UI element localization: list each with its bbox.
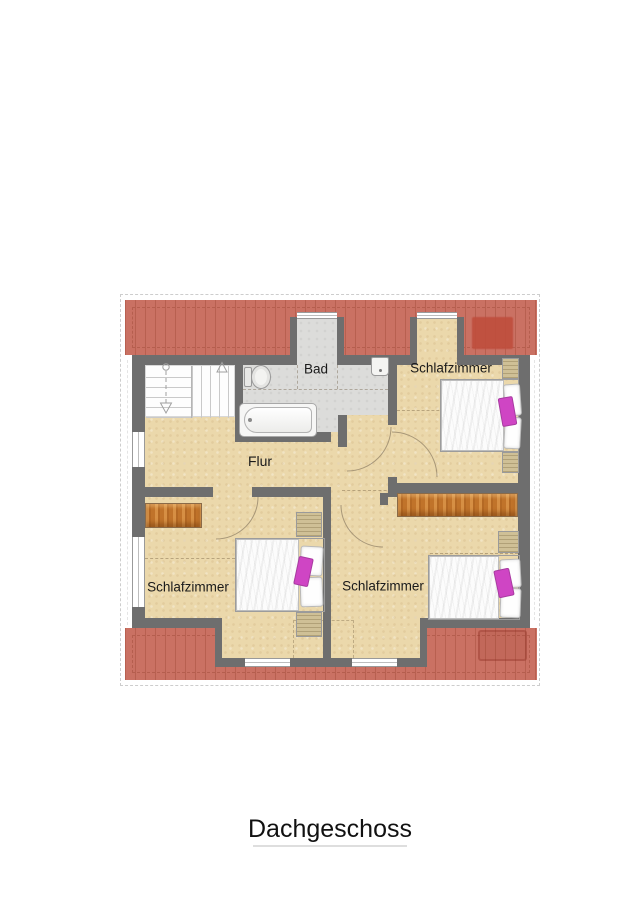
wall-dormer-bottom-1 bbox=[215, 658, 245, 667]
bed-bottom-left-duvet bbox=[236, 539, 299, 611]
wall-dormer-side-right bbox=[420, 628, 427, 658]
bed-bottom-right-duvet bbox=[429, 556, 499, 619]
bed-top-right-duvet bbox=[441, 380, 504, 451]
wall-topdormer-bath-left bbox=[290, 317, 297, 355]
wall-bottom-left bbox=[132, 618, 222, 628]
window-dormer-bottom-left bbox=[245, 658, 290, 667]
ceiling-line-bath-dormer-right bbox=[337, 365, 338, 389]
room-label-schlafzimmer-top-right: Schlafzimmer bbox=[410, 361, 492, 376]
wall-dormer-bottom-3 bbox=[397, 658, 427, 667]
bathtub-drain bbox=[248, 418, 252, 422]
wall-hall-south-b bbox=[252, 487, 331, 497]
wall-door-jamb-bottom-right bbox=[380, 493, 388, 505]
ceiling-line-bedroom-bottom-left bbox=[145, 558, 235, 559]
stair-treads-left bbox=[146, 374, 192, 418]
wall-bath-right bbox=[388, 357, 397, 425]
window-left-upper bbox=[132, 432, 145, 467]
window-dormer-bottom-right bbox=[352, 658, 397, 667]
nightstand-bottom-left-1 bbox=[296, 512, 322, 537]
toilet-bowl bbox=[251, 365, 271, 389]
wall-door-jamb-top-right bbox=[388, 477, 397, 497]
window-dormer-bath bbox=[297, 312, 337, 319]
nightstand-top-right-1 bbox=[502, 358, 519, 379]
window-dormer-bedroom-top-right bbox=[417, 312, 457, 319]
wall-topdormer-bedroom-right bbox=[457, 317, 464, 355]
wall-dormer-side-left bbox=[215, 628, 222, 658]
bathtub-basin bbox=[244, 407, 312, 433]
page-title: Dachgeschoss bbox=[248, 815, 412, 844]
sideboard-bottom-right bbox=[397, 493, 518, 517]
wall-bath-door-step bbox=[338, 415, 347, 447]
ceiling-line-bath-dormer-left bbox=[297, 365, 298, 389]
nightstand-bottom-right-1 bbox=[498, 531, 519, 553]
roof-mark-bottom-right bbox=[478, 630, 527, 661]
floor-dormer-bedroom-top-right bbox=[417, 319, 457, 355]
wall-left-a bbox=[132, 355, 145, 432]
sink bbox=[371, 357, 389, 376]
dresser-bottom-left bbox=[145, 503, 202, 528]
floor-dormer-bath bbox=[297, 319, 337, 365]
room-label-flur: Flur bbox=[248, 453, 272, 469]
wall-top-1 bbox=[132, 355, 297, 365]
room-label-schlafzimmer-bottom-left: Schlafzimmer bbox=[147, 580, 229, 595]
stairwell bbox=[145, 365, 235, 417]
wall-left-b bbox=[132, 467, 145, 537]
room-label-schlafzimmer-bottom-right: Schlafzimmer bbox=[342, 579, 424, 594]
ceiling-line-bath bbox=[243, 389, 388, 390]
wall-hall-south-a bbox=[132, 487, 213, 497]
stair-treads-right bbox=[192, 366, 236, 418]
roof-overhang-line-left bbox=[127, 360, 128, 625]
nightstand-bottom-left-2 bbox=[296, 612, 322, 637]
nightstand-top-right-2 bbox=[502, 452, 519, 473]
floor-plan-page: Bad Flur Schlafzimmer Schlafzimmer Schla… bbox=[0, 0, 634, 900]
title-underline bbox=[253, 845, 407, 847]
roof-window-skylight bbox=[472, 317, 513, 349]
stair-divider-line bbox=[191, 366, 192, 418]
window-left-lower bbox=[132, 537, 145, 607]
wall-dormer-bottom-2 bbox=[290, 658, 352, 667]
roof-overhang-line-right bbox=[534, 360, 535, 620]
wall-bedrooms-right-divider bbox=[388, 483, 518, 493]
wall-topdormer-bedroom-left bbox=[410, 317, 417, 355]
bathtub bbox=[239, 403, 317, 437]
ceiling-line-bedroom-bottom-right bbox=[430, 553, 518, 554]
room-label-bad: Bad bbox=[304, 362, 328, 377]
sink-drain bbox=[379, 369, 382, 372]
wall-topdormer-bath-right bbox=[337, 317, 344, 355]
